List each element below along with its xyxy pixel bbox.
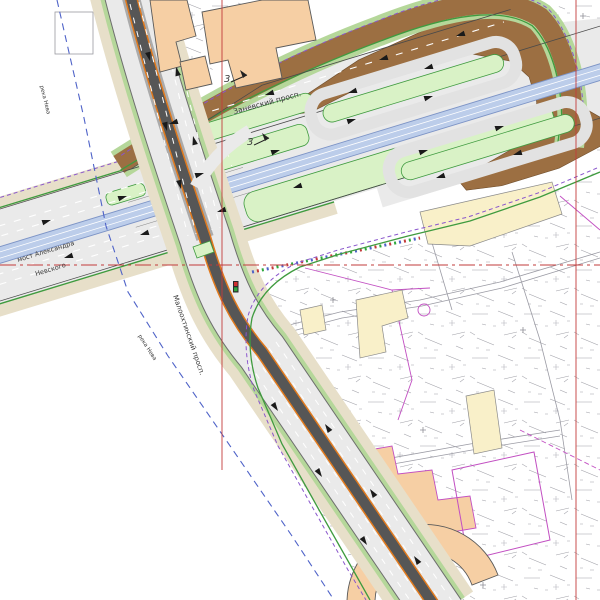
callout-label: 3 [247,137,253,148]
plan-canvas: 3 3 Заневский просп. мост Александра Нев… [0,0,600,600]
building-yellow-4 [300,305,326,335]
interchange-plan-svg: 3 3 Заневский просп. мост Александра Нев… [0,0,600,600]
callout-label: 3 [224,74,230,85]
traffic-signal-icon [233,281,239,293]
label-neva-upper: река Нева [38,85,51,115]
label-neva-lower: река Нева [136,334,157,362]
